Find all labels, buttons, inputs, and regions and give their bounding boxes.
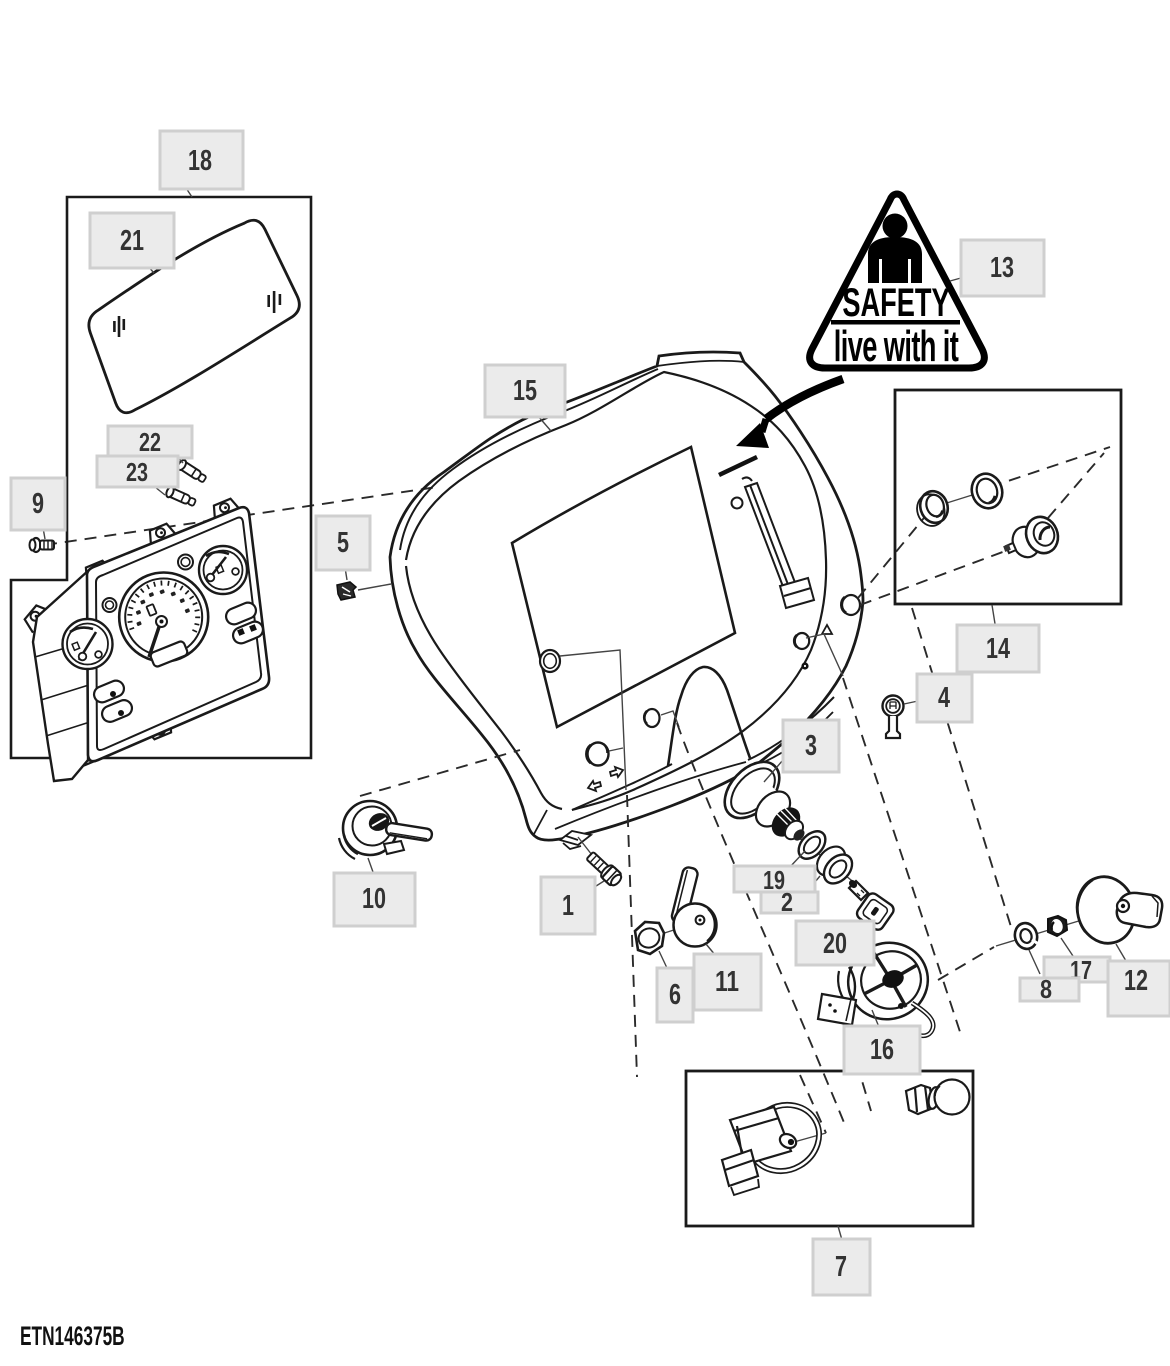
svg-text:16: 16 bbox=[870, 1034, 894, 1066]
svg-text:8: 8 bbox=[1040, 974, 1052, 1004]
svg-text:10: 10 bbox=[362, 883, 386, 915]
svg-text:11: 11 bbox=[715, 966, 739, 998]
svg-text:22: 22 bbox=[139, 427, 161, 457]
svg-text:12: 12 bbox=[1124, 965, 1148, 997]
svg-text:7: 7 bbox=[835, 1251, 847, 1283]
svg-text:2: 2 bbox=[781, 887, 793, 917]
svg-text:1: 1 bbox=[562, 890, 574, 922]
svg-text:9: 9 bbox=[32, 488, 44, 520]
svg-text:14: 14 bbox=[986, 633, 1010, 665]
svg-text:3: 3 bbox=[805, 730, 817, 762]
svg-text:4: 4 bbox=[938, 682, 950, 714]
svg-text:23: 23 bbox=[126, 457, 148, 487]
svg-text:15: 15 bbox=[513, 375, 537, 407]
svg-text:SAFETY: SAFETY bbox=[842, 281, 949, 325]
svg-text:live with it: live with it bbox=[834, 321, 959, 370]
svg-text:ETN146375B: ETN146375B bbox=[20, 1320, 125, 1351]
svg-text:20: 20 bbox=[823, 928, 847, 960]
svg-text:13: 13 bbox=[990, 252, 1014, 284]
svg-text:5: 5 bbox=[337, 527, 349, 559]
svg-text:21: 21 bbox=[120, 225, 144, 257]
svg-text:18: 18 bbox=[188, 145, 212, 177]
svg-text:6: 6 bbox=[669, 979, 681, 1011]
